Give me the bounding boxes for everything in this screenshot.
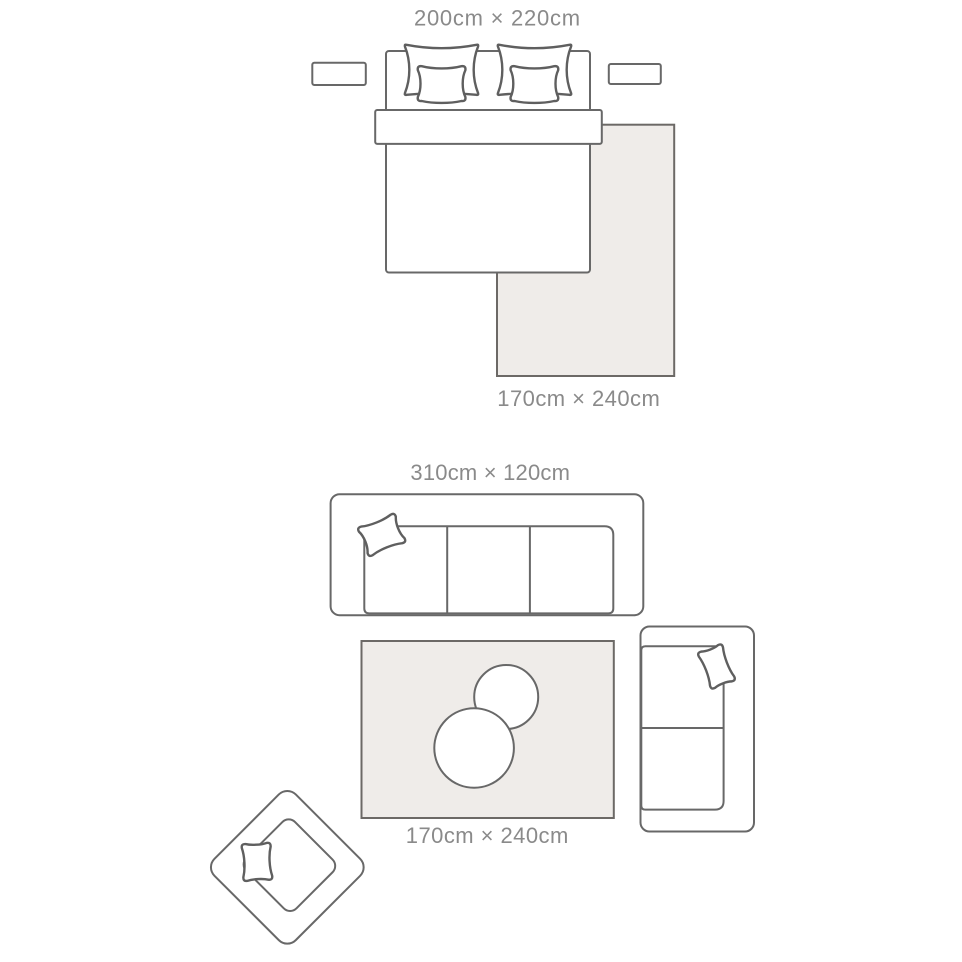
- svg-text:310cm × 120cm: 310cm × 120cm: [410, 460, 570, 485]
- svg-text:200cm × 220cm: 200cm × 220cm: [414, 5, 581, 30]
- svg-text:170cm × 240cm: 170cm × 240cm: [406, 823, 569, 848]
- svg-text:170cm × 240cm: 170cm × 240cm: [497, 386, 660, 411]
